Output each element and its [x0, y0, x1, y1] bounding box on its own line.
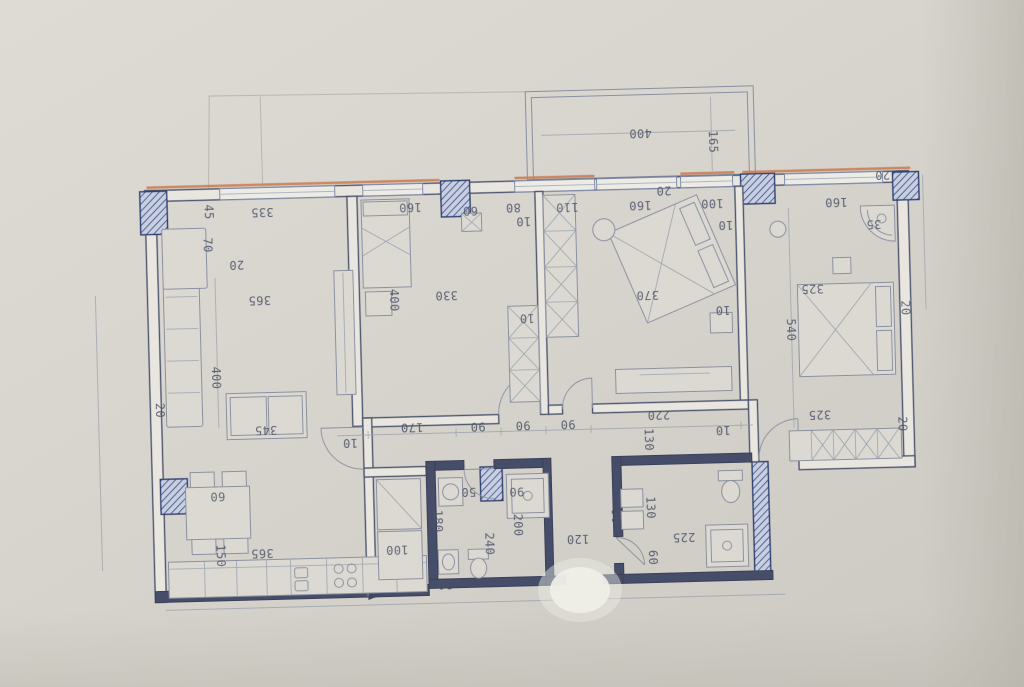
wall-corridor-b — [548, 405, 562, 414]
window-living — [220, 186, 335, 200]
tv-cabinet — [334, 270, 356, 394]
dimension-label: 90 — [515, 418, 531, 432]
toilet-2 — [718, 470, 743, 503]
dimension-label: 10 — [343, 436, 359, 450]
column-left-lower — [160, 479, 188, 515]
dimension-label: 100 — [701, 196, 724, 211]
dimension-label: 370 — [636, 288, 659, 303]
column-top-left — [140, 191, 168, 235]
wall-bedroom2-bedroom3 — [735, 186, 749, 400]
dimension-label: 220 — [647, 408, 670, 423]
dining-area — [185, 471, 251, 555]
shower-2 — [706, 524, 749, 567]
dimension-label: 20 — [898, 300, 912, 316]
dimension-label: 50 — [461, 485, 477, 499]
side-table — [770, 221, 786, 237]
window-bedroom1 — [363, 183, 423, 196]
dimension-label: 325 — [801, 282, 824, 297]
shadow-bottom — [0, 610, 1024, 687]
bathroom2 — [620, 470, 748, 569]
window-bedroom3 — [784, 171, 882, 185]
shadow-right — [920, 0, 1024, 687]
dimension-label: 160 — [399, 200, 422, 215]
dimension-label: 160 — [825, 195, 848, 210]
sofa — [162, 228, 211, 427]
washing-machine — [438, 478, 463, 507]
dimension-label: 160 — [629, 198, 652, 213]
door-bath2 — [616, 537, 645, 566]
floor-plan-photo: 4001652045703352036540020345160608010110… — [0, 0, 1024, 687]
dimension-label: 10 — [718, 218, 734, 232]
dimension-label: 365 — [251, 546, 274, 561]
dimension-label: 180 — [431, 510, 446, 533]
chair-round — [593, 218, 616, 241]
dimension-label: 90 — [470, 419, 486, 433]
dimension-label: 130 — [642, 428, 657, 451]
dimension-label: 10 — [519, 311, 535, 325]
floor-plan: 4001652045703352036540020345160608010110… — [90, 77, 933, 612]
closet-niche — [376, 479, 423, 580]
dimension-label: 345 — [254, 423, 277, 438]
dimension-label: 45 — [202, 204, 216, 220]
sink-1 — [438, 550, 459, 575]
dimension-label: 400 — [629, 126, 652, 141]
roof-outline-2 — [260, 97, 262, 187]
wardrobe-3 — [789, 428, 902, 461]
dimension-label: 400 — [209, 366, 224, 389]
dimension-label: 330 — [435, 288, 458, 303]
sink-2 — [621, 489, 644, 530]
dimension-label: 120 — [566, 532, 589, 547]
dimension-label: 20 — [153, 403, 167, 419]
dimension-label: 80 — [505, 200, 521, 214]
chair — [222, 471, 246, 487]
wall-niche-top — [364, 466, 426, 477]
dimension-label: 60 — [210, 489, 226, 503]
dimension-label: 90 — [609, 509, 623, 525]
dimension-label: 20 — [656, 183, 672, 197]
dimension-label: 90 — [509, 484, 525, 498]
dimension-label: 10 — [516, 214, 532, 228]
shaft-bath1 — [480, 466, 503, 501]
column-top-right-corner — [892, 171, 919, 200]
desk — [615, 366, 732, 393]
dimension-label: 35 — [866, 217, 882, 231]
dimension-label: 325 — [808, 407, 831, 422]
door-bedroom2 — [562, 378, 593, 409]
dimension-label: 335 — [251, 205, 274, 220]
chair — [192, 539, 216, 555]
dimension-label: 400 — [387, 289, 402, 312]
dimension-label: 540 — [784, 318, 799, 341]
dimension-label: 110 — [556, 200, 579, 215]
dimension-label: 100 — [386, 542, 409, 557]
balcony-door-window — [515, 179, 595, 192]
dimension-label: 30 — [437, 577, 453, 591]
dimension-label: 20 — [229, 258, 245, 272]
dimension-label: 200 — [511, 513, 526, 536]
dimension-label: 60 — [462, 204, 478, 218]
dimension-label: 90 — [560, 417, 576, 431]
dimension-label: 20 — [875, 168, 891, 182]
column-top-right-mid — [740, 173, 775, 204]
nightstand-3 — [833, 257, 851, 273]
window-bedroom2-b — [680, 175, 732, 187]
roof-outline — [206, 88, 527, 188]
dimension-label: 150 — [213, 544, 228, 567]
dimension-label: 240 — [482, 532, 497, 555]
dimension-label: 225 — [672, 530, 695, 545]
living-room — [162, 224, 357, 441]
dimension-label: 70 — [200, 237, 214, 253]
chair — [190, 472, 214, 488]
dimension-label: 10 — [715, 303, 731, 317]
dimension-label: 170 — [400, 420, 423, 435]
dimension-label: 365 — [248, 293, 271, 308]
dimension-label: 60 — [646, 550, 660, 566]
dimension-label: 130 — [643, 496, 658, 519]
dimension-label: 165 — [706, 130, 721, 153]
wardrobe-2 — [543, 194, 579, 337]
dimension-label: 10 — [715, 423, 731, 437]
shaft-wall-bath2 — [752, 462, 771, 574]
dimension-label: 20 — [895, 416, 909, 432]
